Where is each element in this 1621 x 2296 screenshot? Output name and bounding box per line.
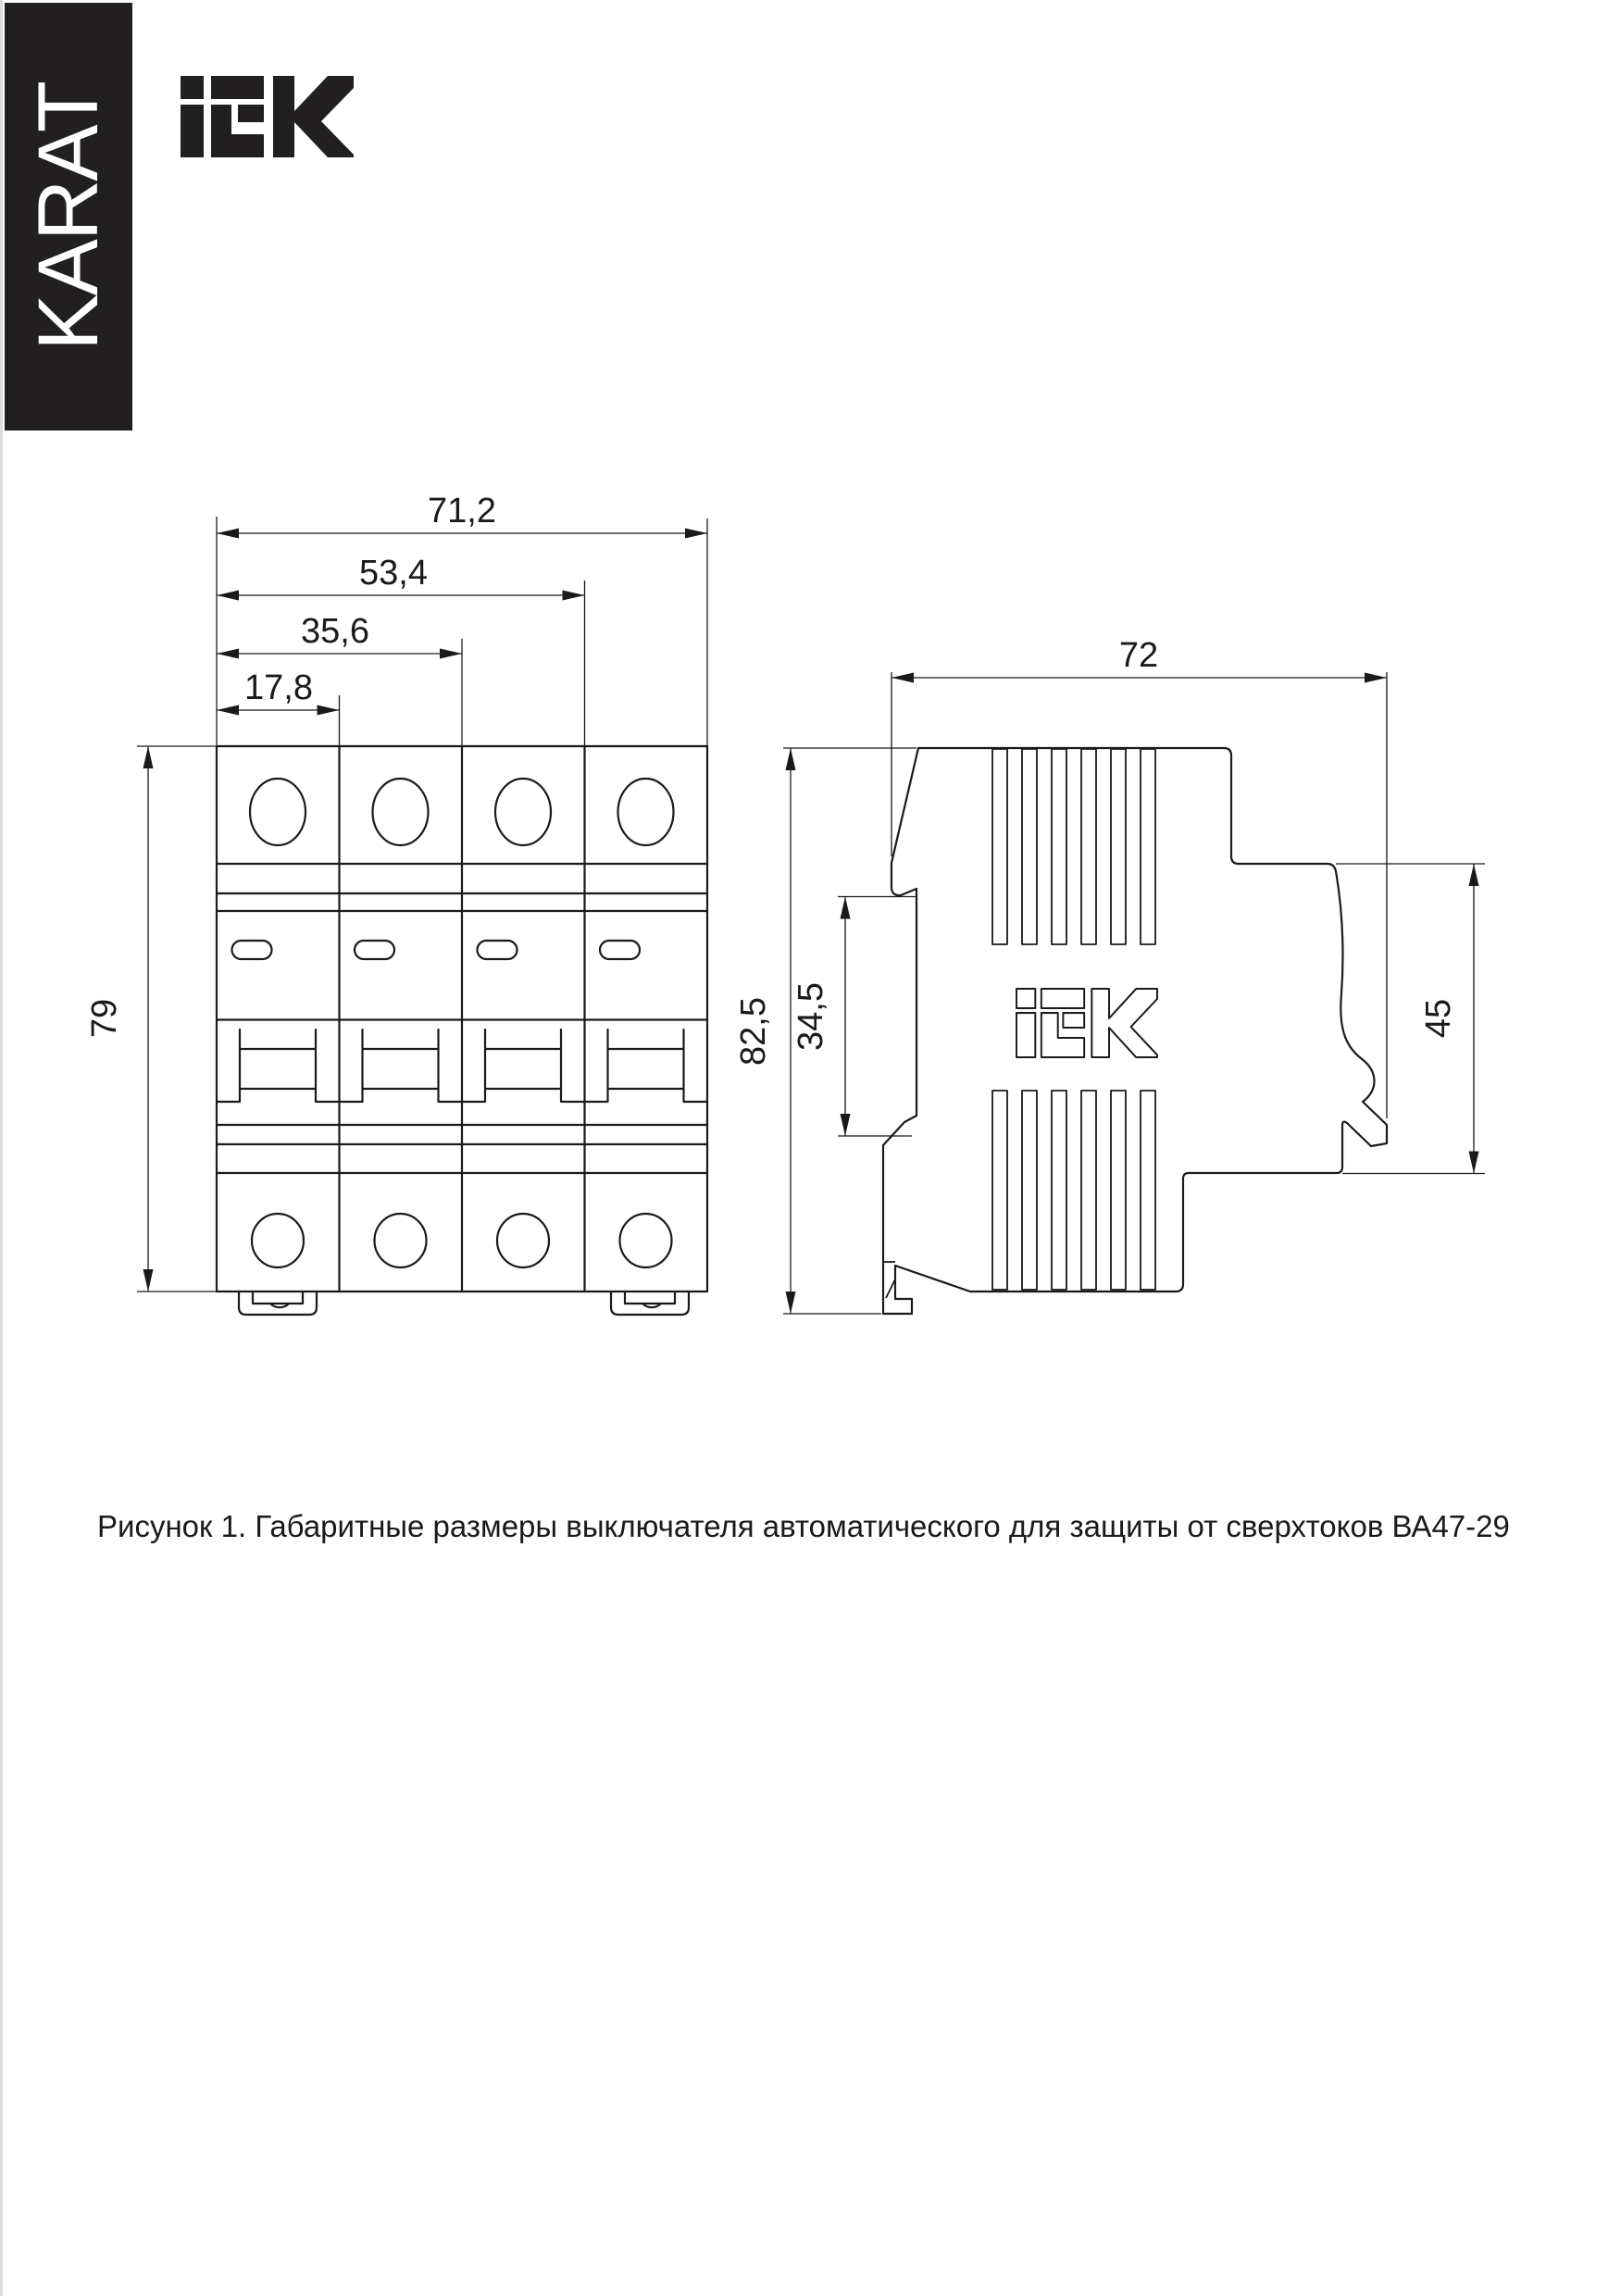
toggle-handle <box>217 1029 340 1102</box>
side-iek-logo <box>1016 989 1157 1057</box>
indicator-window <box>600 941 640 959</box>
logo-e-mid <box>238 105 264 122</box>
vent-slot <box>1081 1091 1096 1290</box>
page-root: KARAT <box>0 0 1621 2296</box>
vent-slot <box>1111 749 1126 944</box>
toggle-handle <box>462 1029 585 1102</box>
vent-slots-top <box>992 749 1155 944</box>
front-height-dimension: 79 <box>85 746 217 1291</box>
vent-slot <box>1022 1091 1037 1290</box>
din-clip <box>611 1291 689 1315</box>
dim-height-total: 82,5 <box>734 997 773 1066</box>
dim-height: 79 <box>85 999 124 1038</box>
dim-width-one-pole: 17,8 <box>244 668 313 707</box>
din-slider-notch <box>886 1279 895 1298</box>
vent-slot <box>1052 1091 1066 1290</box>
vent-slot <box>992 1091 1007 1290</box>
dim-din-channel: 34,5 <box>792 982 830 1051</box>
vent-slots-bottom <box>992 1091 1155 1290</box>
side-din-dimension: 34,5 <box>792 897 916 1137</box>
terminal-screw-top <box>250 779 305 845</box>
terminal-screw-bottom <box>497 1214 549 1267</box>
iek-header-logo <box>181 76 354 157</box>
logo-i-dot <box>181 76 204 99</box>
front-view: 71,2 53,4 35,6 17,8 <box>85 492 707 1315</box>
dim-depth: 72 <box>1119 636 1158 675</box>
vent-slot <box>1141 1091 1155 1290</box>
vent-slot <box>1111 1091 1126 1290</box>
logo-k <box>273 76 354 157</box>
terminal-screw-top <box>495 779 551 845</box>
toggle-handle <box>340 1029 463 1102</box>
indicator-window <box>355 941 394 959</box>
logo-e-top <box>211 76 264 99</box>
vent-slot <box>992 749 1007 944</box>
vent-slot <box>1141 749 1155 944</box>
vent-slot <box>1081 749 1096 944</box>
terminal-screw-top <box>618 779 674 845</box>
terminal-screw-bottom <box>620 1214 672 1267</box>
side-terminal-dimension: 45 <box>1336 864 1485 1174</box>
dim-width-total: 71,2 <box>428 492 496 530</box>
indicator-window <box>478 941 517 959</box>
terminal-screw-top <box>373 779 429 845</box>
logo-i-stem <box>181 105 204 157</box>
figure-caption: Рисунок 1. Габаритные размеры выключател… <box>97 1509 1510 1544</box>
indicator-window <box>232 941 272 959</box>
dim-terminal-height: 45 <box>1419 999 1458 1038</box>
terminal-screw-bottom <box>252 1214 304 1267</box>
dim-width-two-pole: 35,6 <box>301 612 369 651</box>
technical-drawing-svg: 71,2 53,4 35,6 17,8 <box>0 0 1621 2296</box>
side-view: 72 82,5 34,5 <box>734 636 1485 1314</box>
vent-slot <box>1022 749 1037 944</box>
dim-width-three-pole: 53,4 <box>359 554 428 593</box>
vent-slot <box>1052 749 1066 944</box>
toggle-handle <box>585 1029 708 1102</box>
front-width-dimensions: 71,2 53,4 35,6 17,8 <box>217 492 707 746</box>
terminal-screw-bottom <box>375 1214 427 1267</box>
din-clip <box>239 1291 317 1315</box>
